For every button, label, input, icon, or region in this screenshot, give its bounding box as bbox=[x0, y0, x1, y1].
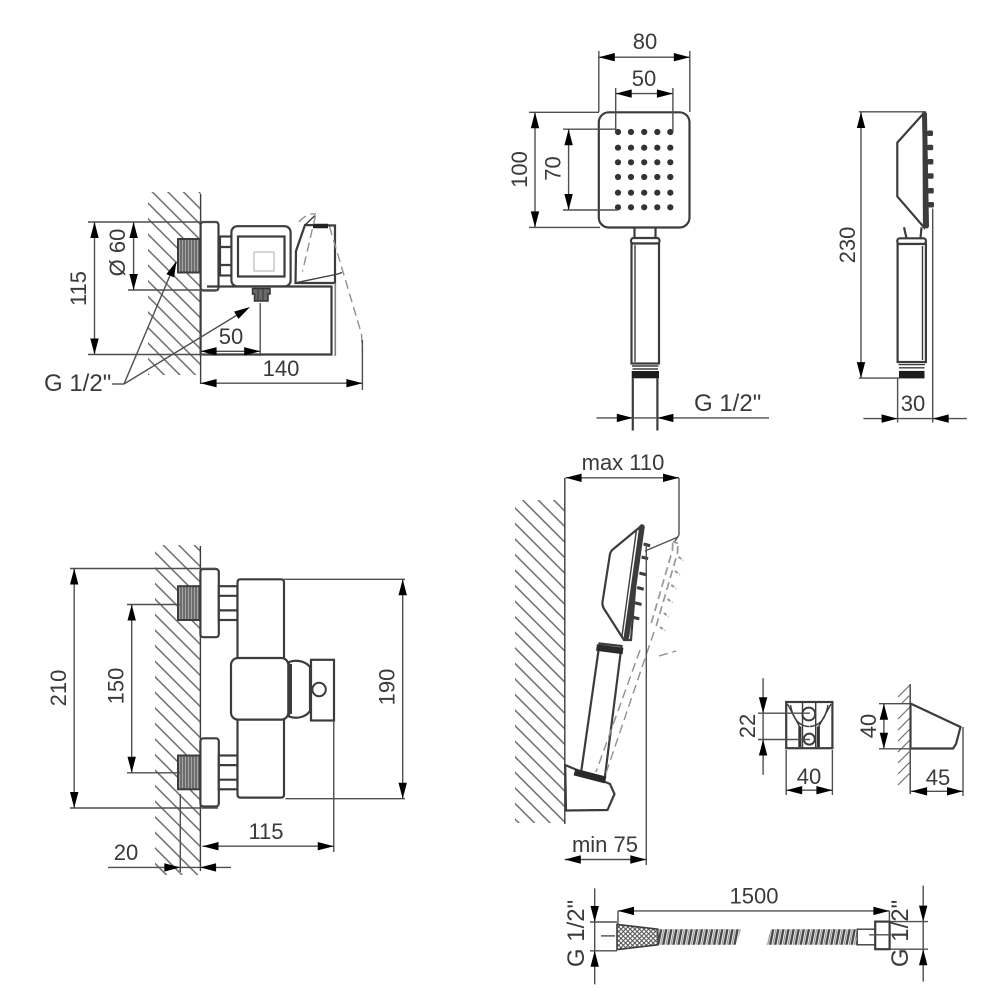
svg-text:50: 50 bbox=[219, 324, 243, 349]
svg-text:max 110: max 110 bbox=[582, 450, 665, 475]
svg-text:50: 50 bbox=[632, 66, 656, 91]
svg-text:G 1/2": G 1/2" bbox=[44, 370, 111, 397]
svg-text:40: 40 bbox=[856, 714, 881, 738]
svg-text:115: 115 bbox=[248, 819, 283, 844]
svg-text:230: 230 bbox=[835, 227, 860, 264]
svg-text:115: 115 bbox=[66, 271, 91, 306]
svg-text:30: 30 bbox=[901, 391, 925, 416]
svg-text:140: 140 bbox=[263, 356, 300, 381]
svg-text:190: 190 bbox=[375, 669, 400, 706]
svg-text:G 1/2": G 1/2" bbox=[694, 390, 761, 417]
svg-text:1500: 1500 bbox=[730, 884, 779, 909]
svg-text:150: 150 bbox=[104, 668, 129, 705]
svg-text:80: 80 bbox=[633, 29, 657, 54]
svg-text:40: 40 bbox=[797, 764, 821, 789]
svg-text:100: 100 bbox=[507, 151, 532, 188]
svg-text:22: 22 bbox=[735, 714, 760, 738]
svg-text:20: 20 bbox=[114, 840, 138, 865]
svg-text:45: 45 bbox=[926, 765, 950, 790]
svg-text:G 1/2": G 1/2" bbox=[563, 900, 590, 967]
svg-text:210: 210 bbox=[46, 670, 71, 707]
svg-text:G 1/2": G 1/2" bbox=[887, 900, 914, 967]
svg-text:min 75: min 75 bbox=[572, 832, 638, 857]
svg-text:Ø 60: Ø 60 bbox=[105, 229, 130, 277]
svg-text:70: 70 bbox=[541, 156, 566, 180]
